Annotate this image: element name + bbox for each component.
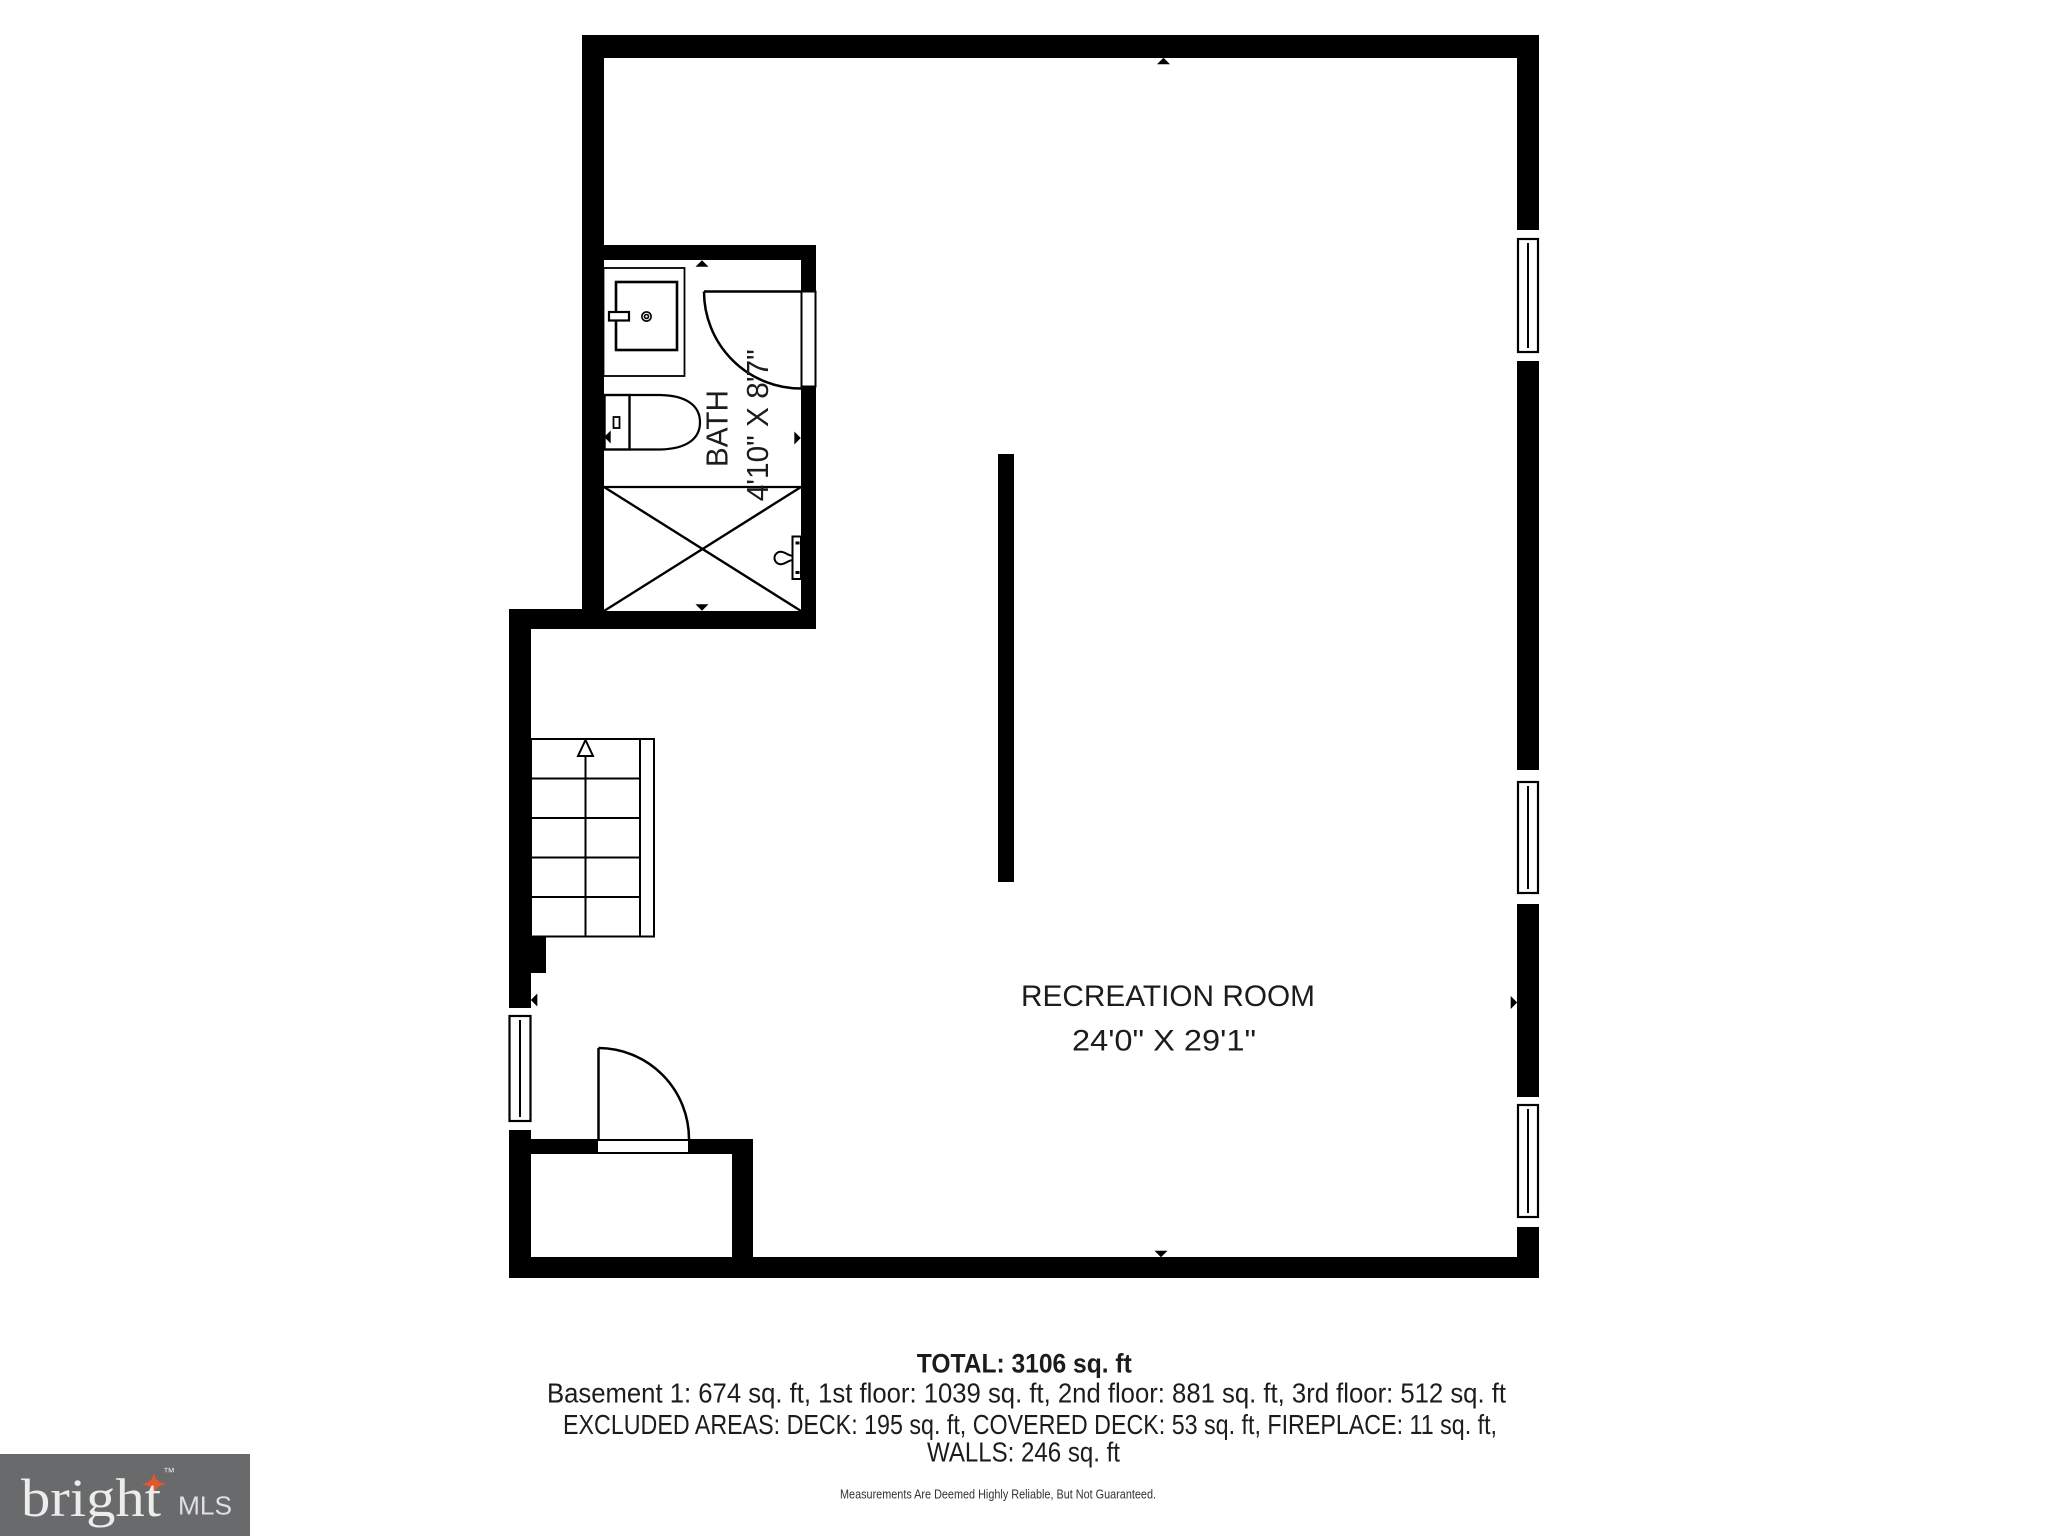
- svg-text:24'0" X 29'1": 24'0" X 29'1": [1072, 1025, 1256, 1058]
- svg-text:RECREATION ROOM: RECREATION ROOM: [1021, 980, 1315, 1013]
- svg-text:TOTAL: 3106 sq. ft: TOTAL: 3106 sq. ft: [917, 1349, 1132, 1379]
- svg-text:Measurements Are Deemed Highly: Measurements Are Deemed Highly Reliable,…: [840, 1488, 1156, 1502]
- svg-text:MLS: MLS: [178, 1491, 232, 1521]
- svg-text:WALLS: 246 sq. ft: WALLS: 246 sq. ft: [927, 1437, 1120, 1468]
- svg-text:BATH: BATH: [700, 390, 735, 467]
- svg-text:Basement 1: 674 sq. ft, 1st fl: Basement 1: 674 sq. ft, 1st floor: 1039 …: [547, 1378, 1506, 1409]
- svg-text:™: ™: [163, 1465, 175, 1479]
- svg-text:4'10" X 8'7": 4'10" X 8'7": [740, 349, 775, 501]
- svg-text:bright: bright: [21, 1468, 161, 1528]
- svg-text:EXCLUDED AREAS: DECK: 195 sq.: EXCLUDED AREAS: DECK: 195 sq. ft, COVERE…: [563, 1409, 1497, 1440]
